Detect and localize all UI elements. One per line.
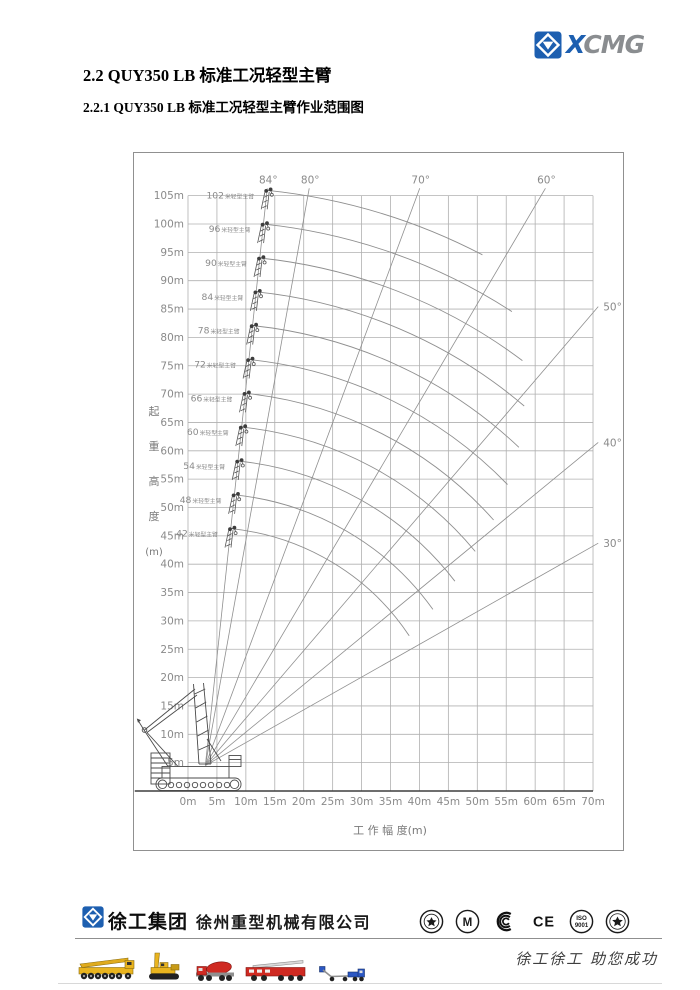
company-logotype: 徐工集团 bbox=[108, 907, 188, 934]
crawler-crane bbox=[145, 951, 185, 982]
boom-head-icon bbox=[258, 221, 270, 243]
boom-angle-lines bbox=[205, 188, 598, 765]
svg-text:30m: 30m bbox=[160, 615, 184, 627]
working-range-chart: 84°80°70°60°50°40°30°102米轻型主臂96米轻型主臂90米轻… bbox=[134, 153, 623, 850]
svg-text:80m: 80m bbox=[160, 332, 184, 344]
svg-text:84°: 84° bbox=[259, 174, 278, 186]
all-terrain-crane bbox=[78, 955, 136, 982]
aerial-work-platform bbox=[318, 963, 366, 982]
footer-divider bbox=[75, 938, 662, 939]
svg-text:60m: 60m bbox=[523, 796, 547, 808]
boom-angle-labels: 84°80°70°60°50°40°30° bbox=[259, 174, 622, 550]
boom-head-icon bbox=[232, 458, 244, 480]
ccc-mark-icon bbox=[490, 908, 520, 935]
boom-length-label: 102米轻型主臂 bbox=[206, 190, 254, 201]
svg-text:高: 高 bbox=[149, 474, 160, 488]
boom-length-label: 48米轻型主臂 bbox=[180, 495, 222, 506]
x-axis-title: 工 作 幅 度(m) bbox=[353, 823, 427, 837]
svg-text:90m: 90m bbox=[160, 275, 184, 287]
svg-text:50m: 50m bbox=[160, 502, 184, 514]
svg-text:50m: 50m bbox=[466, 796, 490, 808]
company-slogan: 徐工徐工 助您成功 bbox=[420, 948, 658, 969]
svg-text:50°: 50° bbox=[603, 302, 622, 314]
working-range-diagram-frame: 84°80°70°60°50°40°30°102米轻型主臂96米轻型主臂90米轻… bbox=[133, 152, 624, 851]
svg-text:65m: 65m bbox=[160, 417, 184, 429]
svg-text:25m: 25m bbox=[321, 796, 345, 808]
boom-head-icon bbox=[250, 289, 262, 311]
boom-length-label: 78米轻型主臂 bbox=[198, 326, 240, 337]
crane-illustration bbox=[137, 683, 241, 791]
svg-text:60m: 60m bbox=[160, 445, 184, 457]
boom-length-label: 72米轻型主臂 bbox=[194, 360, 236, 371]
svg-text:70°: 70° bbox=[411, 174, 430, 186]
xcmg-word-x: X bbox=[566, 30, 583, 59]
svg-text:CE: CE bbox=[533, 914, 555, 930]
svg-text:35m: 35m bbox=[379, 796, 403, 808]
svg-text:45m: 45m bbox=[160, 530, 184, 542]
svg-text:55m: 55m bbox=[160, 474, 184, 486]
product-lineup-images bbox=[78, 944, 380, 982]
svg-text:5m: 5m bbox=[208, 796, 225, 808]
document-page: 2.2 QUY350 LB 标准工况轻型主臂 2.2.1 QUY350 LB 标… bbox=[0, 0, 700, 990]
svg-text:30m: 30m bbox=[350, 796, 374, 808]
svg-text:70m: 70m bbox=[160, 389, 184, 401]
boom-length-label: 60米轻型主臂 bbox=[187, 427, 229, 438]
concrete-mixer-truck bbox=[194, 959, 236, 982]
svg-text:20m: 20m bbox=[292, 796, 316, 808]
section-heading: 2.2 QUY350 LB 标准工况轻型主臂 bbox=[83, 62, 331, 86]
svg-text:40m: 40m bbox=[408, 796, 432, 808]
svg-text:105m: 105m bbox=[154, 190, 184, 202]
svg-text:30°: 30° bbox=[603, 538, 622, 550]
boom-length-label: 66米轻型主臂 bbox=[191, 393, 233, 404]
boom-length-label: 84米轻型主臂 bbox=[201, 292, 243, 303]
svg-text:35m: 35m bbox=[160, 587, 184, 599]
company-name: 徐州重型机械有限公司 bbox=[196, 909, 371, 933]
svg-text:M: M bbox=[463, 917, 473, 929]
svg-text:ISO: ISO bbox=[576, 915, 587, 922]
svg-text:0m: 0m bbox=[180, 796, 197, 808]
svg-text:10m: 10m bbox=[234, 796, 258, 808]
xcmg-mark-icon bbox=[534, 31, 562, 59]
ce-mark-icon: CE bbox=[529, 908, 559, 935]
svg-text:9001: 9001 bbox=[575, 923, 589, 929]
boom-length-label: 90米轻型主臂 bbox=[205, 258, 247, 269]
footer-xcmg-mark-icon bbox=[82, 906, 104, 933]
xcmg-wordmark: XCMG bbox=[566, 31, 644, 59]
svg-text:25m: 25m bbox=[160, 644, 184, 656]
svg-text:度: 度 bbox=[149, 509, 160, 523]
quality-award-seal-icon bbox=[418, 908, 445, 935]
svg-text:85m: 85m bbox=[160, 304, 184, 316]
boom-head-icon bbox=[261, 188, 273, 210]
svg-text:75m: 75m bbox=[160, 360, 184, 372]
svg-text:70m: 70m bbox=[581, 796, 605, 808]
xcmg-word-cmg: CMG bbox=[583, 30, 644, 59]
svg-text:15m: 15m bbox=[160, 700, 184, 712]
boom-head-icon bbox=[243, 357, 255, 379]
xcmg-logo: XCMG bbox=[534, 31, 644, 59]
svg-text:起: 起 bbox=[149, 405, 160, 418]
iso9001-seal-icon: ISO 9001 bbox=[568, 908, 595, 935]
boom-length-label: 96米轻型主臂 bbox=[209, 224, 251, 235]
svg-text:(m): (m) bbox=[145, 547, 163, 558]
boom-head-icon bbox=[229, 492, 241, 514]
svg-text:40m: 40m bbox=[160, 559, 184, 571]
svg-text:95m: 95m bbox=[160, 247, 184, 259]
svg-text:15m: 15m bbox=[263, 796, 287, 808]
svg-text:20m: 20m bbox=[160, 672, 184, 684]
svg-text:45m: 45m bbox=[437, 796, 461, 808]
boom-head-icon bbox=[247, 323, 259, 345]
figure-heading: 2.2.1 QUY350 LB 标准工况轻型主臂作业范围图 bbox=[83, 96, 364, 116]
metrology-m-seal-icon: M bbox=[454, 908, 481, 935]
svg-text:100m: 100m bbox=[154, 219, 184, 231]
grid-lines bbox=[188, 196, 593, 791]
svg-text:重: 重 bbox=[149, 439, 160, 453]
inspection-star-seal-icon bbox=[604, 908, 631, 935]
svg-text:80°: 80° bbox=[301, 174, 320, 186]
page-bottom-line bbox=[58, 983, 662, 984]
svg-text:60°: 60° bbox=[537, 174, 556, 186]
certification-marks: M CE ISO 9001 bbox=[418, 908, 631, 935]
boom-head-icon bbox=[225, 526, 237, 548]
boom-head-icon bbox=[254, 255, 266, 277]
svg-text:65m: 65m bbox=[552, 796, 576, 808]
svg-text:40°: 40° bbox=[603, 437, 622, 449]
boom-length-label: 54米轻型主臂 bbox=[183, 461, 225, 472]
svg-text:10m: 10m bbox=[160, 729, 184, 741]
fire-ladder-truck bbox=[245, 957, 309, 982]
svg-text:55m: 55m bbox=[494, 796, 518, 808]
